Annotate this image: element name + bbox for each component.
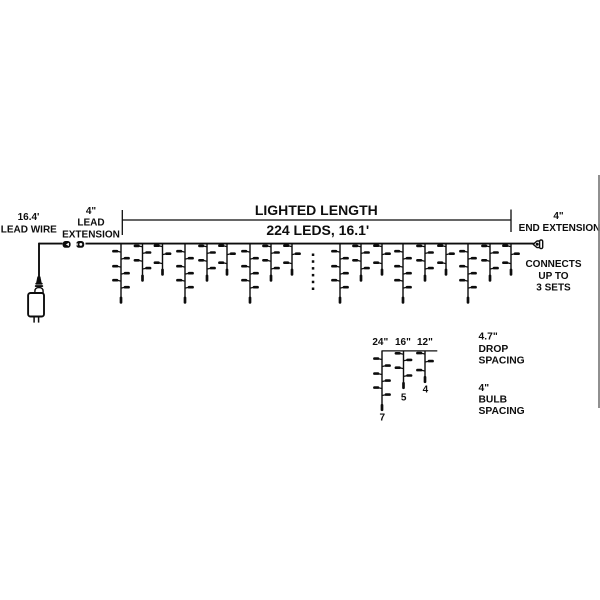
svg-text:7: 7 [380, 412, 386, 423]
svg-text:4": 4" [479, 383, 490, 394]
svg-text:224 LEDS, 16.1': 224 LEDS, 16.1' [266, 222, 369, 238]
svg-text:24": 24" [372, 337, 388, 348]
svg-text:EXTENSION: EXTENSION [62, 229, 120, 240]
svg-text:LIGHTED LENGTH: LIGHTED LENGTH [255, 202, 378, 218]
svg-text:16": 16" [395, 337, 411, 348]
svg-text:CONNECTS: CONNECTS [525, 259, 581, 270]
svg-text:SPACING: SPACING [479, 406, 525, 417]
svg-text:END EXTENSION: END EXTENSION [519, 223, 600, 234]
svg-text:SPACING: SPACING [479, 355, 525, 366]
svg-text:BULB: BULB [479, 394, 508, 405]
svg-text:12": 12" [417, 337, 433, 348]
svg-text:UP TO: UP TO [538, 271, 568, 282]
svg-text:LEAD WIRE: LEAD WIRE [1, 225, 57, 236]
svg-text:4: 4 [423, 384, 429, 395]
svg-text:3 SETS: 3 SETS [536, 283, 571, 294]
svg-text:DROP: DROP [479, 344, 509, 355]
svg-text:4.7": 4.7" [479, 332, 498, 343]
svg-text:5: 5 [401, 392, 407, 403]
svg-text:LEAD: LEAD [77, 218, 104, 229]
svg-text:4": 4" [553, 211, 564, 222]
svg-text:4": 4" [86, 206, 97, 217]
svg-text:16.4': 16.4' [18, 212, 40, 223]
